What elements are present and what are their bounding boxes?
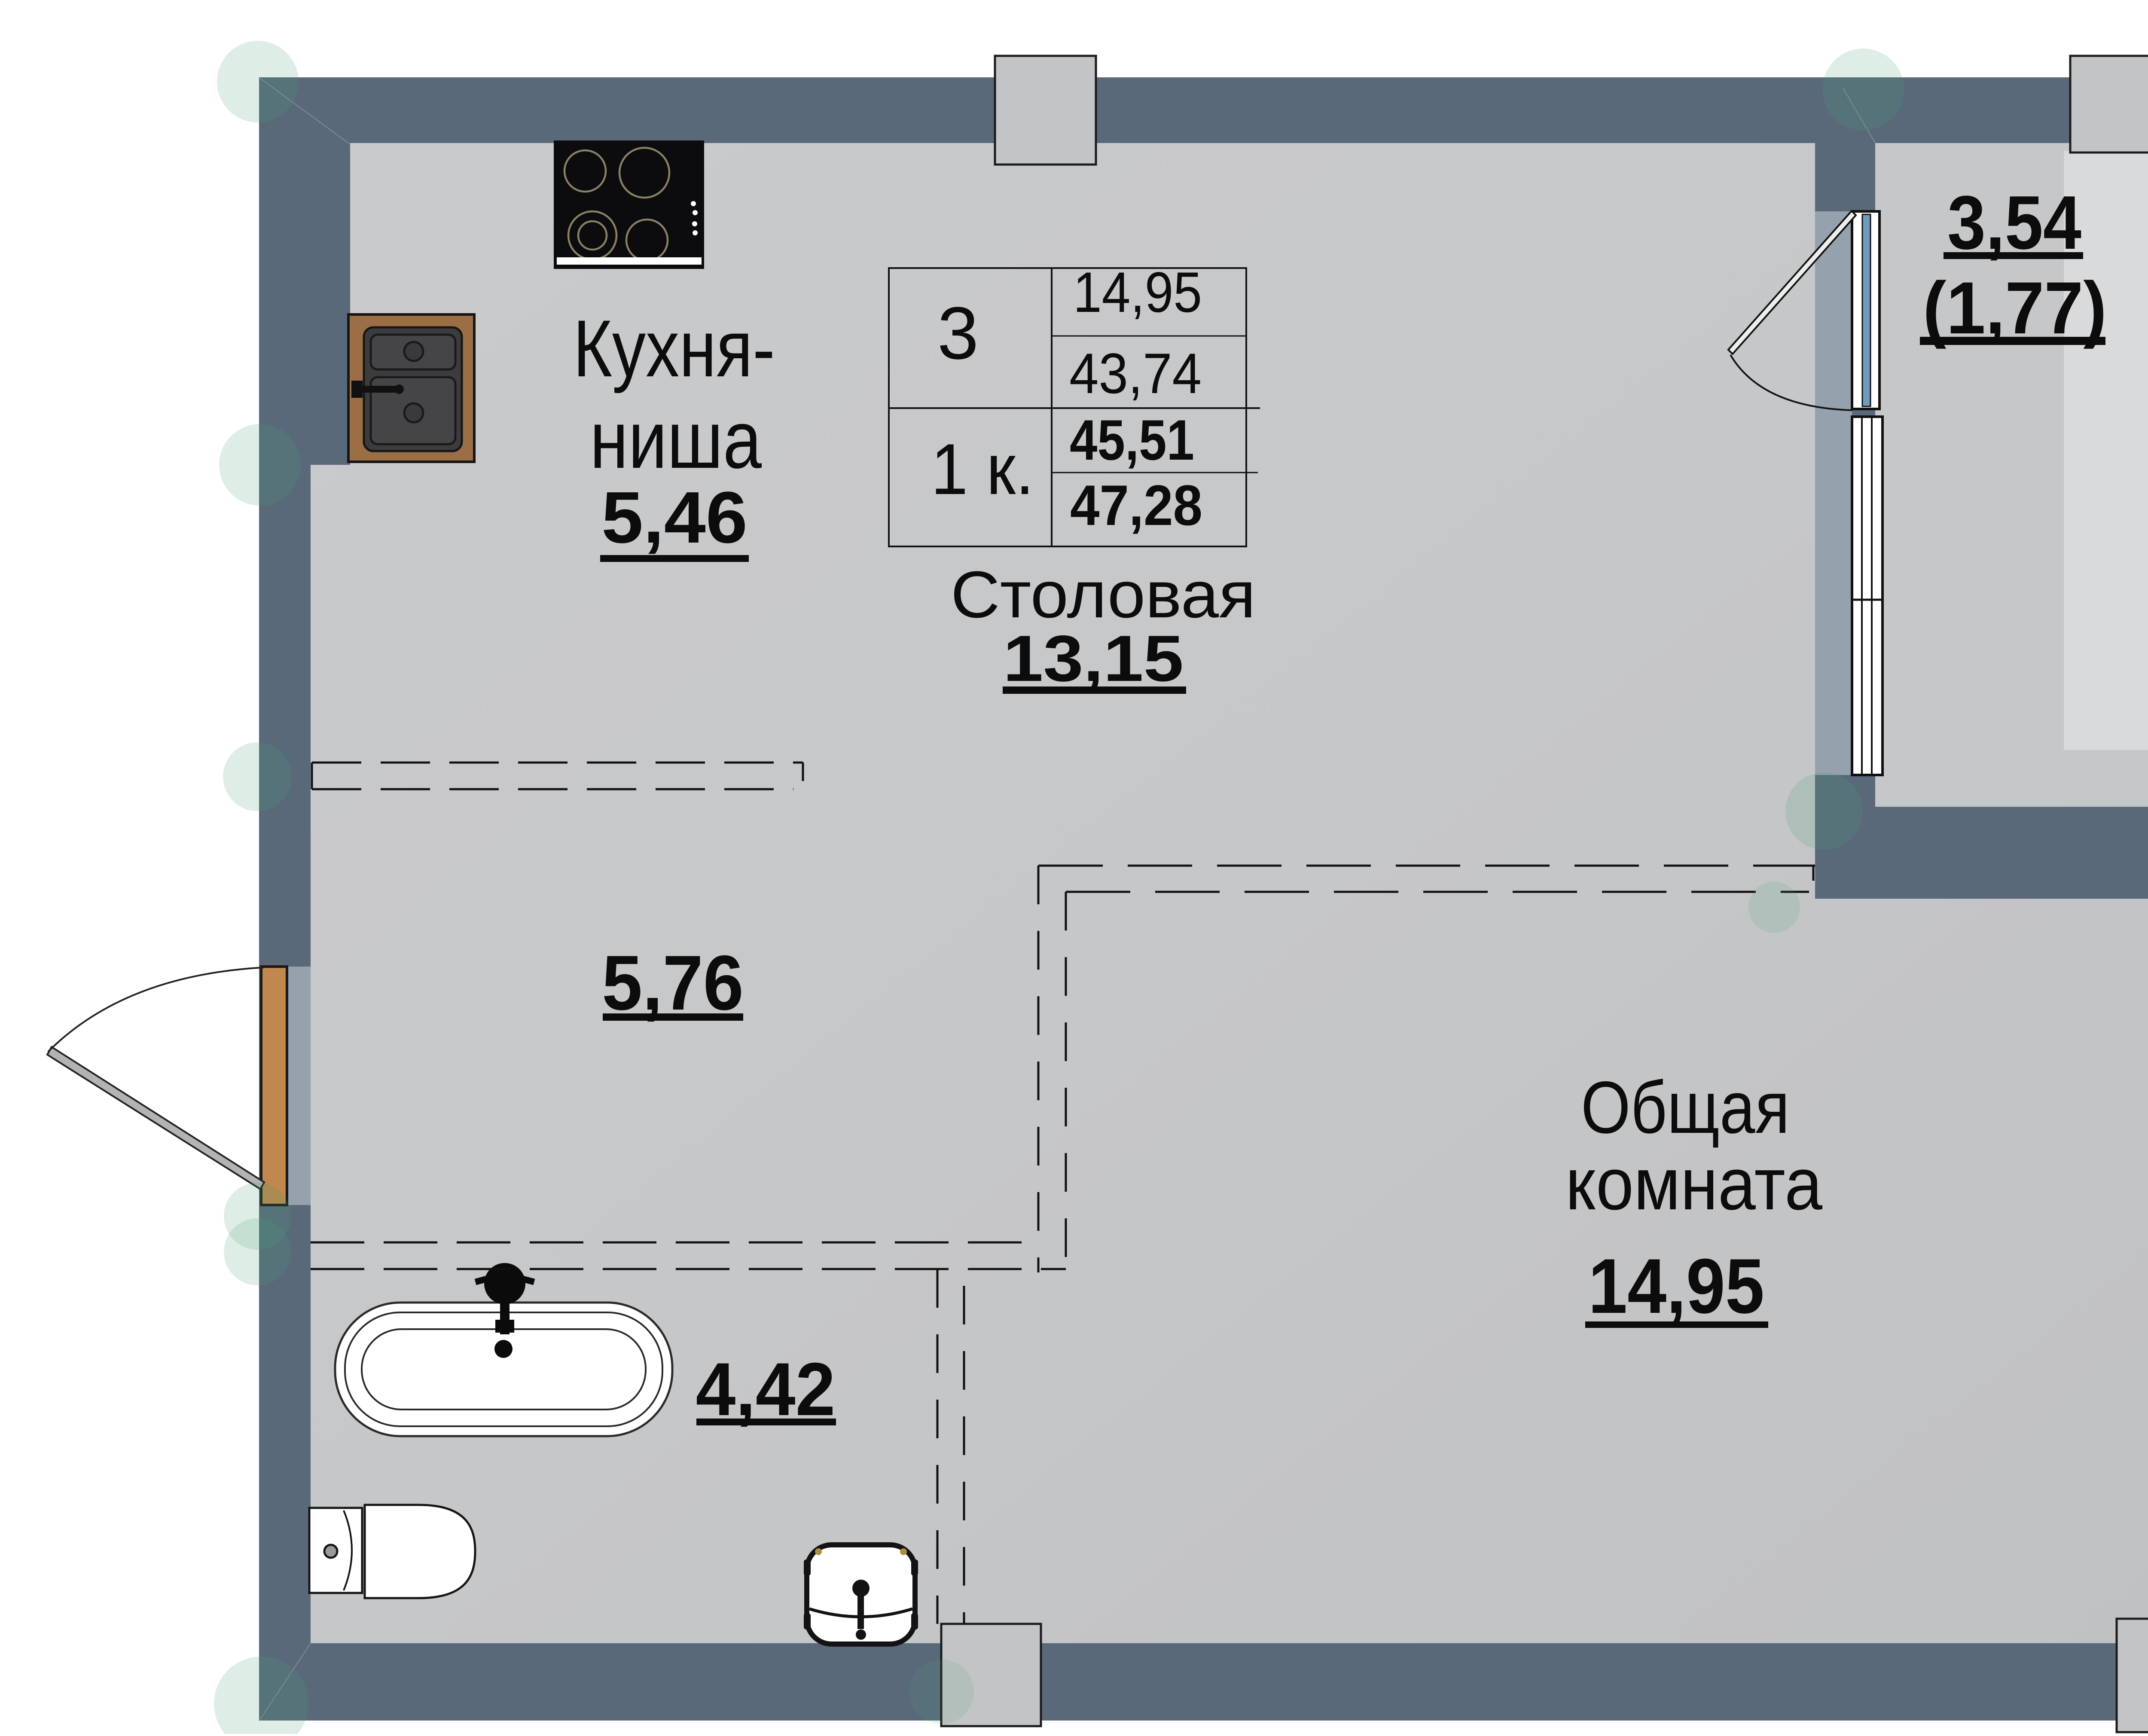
svg-text:43,74: 43,74 — [1069, 342, 1202, 406]
svg-text:14,95: 14,95 — [1588, 1243, 1764, 1330]
svg-text:5,46: 5,46 — [601, 477, 748, 558]
svg-text:14,95: 14,95 — [1073, 261, 1202, 324]
svg-text:1 к.: 1 к. — [931, 429, 1034, 510]
svg-text:Общая: Общая — [1581, 1066, 1790, 1149]
svg-text:13,15: 13,15 — [1003, 622, 1184, 695]
svg-text:45,51: 45,51 — [1070, 409, 1194, 472]
svg-text:5,76: 5,76 — [602, 940, 744, 1026]
svg-text:3: 3 — [937, 291, 979, 375]
svg-text:47,28: 47,28 — [1070, 474, 1202, 537]
svg-text:ниша: ниша — [590, 394, 762, 485]
svg-text:Столовая: Столовая — [951, 558, 1256, 632]
svg-text:Кухня-: Кухня- — [573, 303, 775, 394]
svg-text:комната: комната — [1565, 1143, 1822, 1225]
